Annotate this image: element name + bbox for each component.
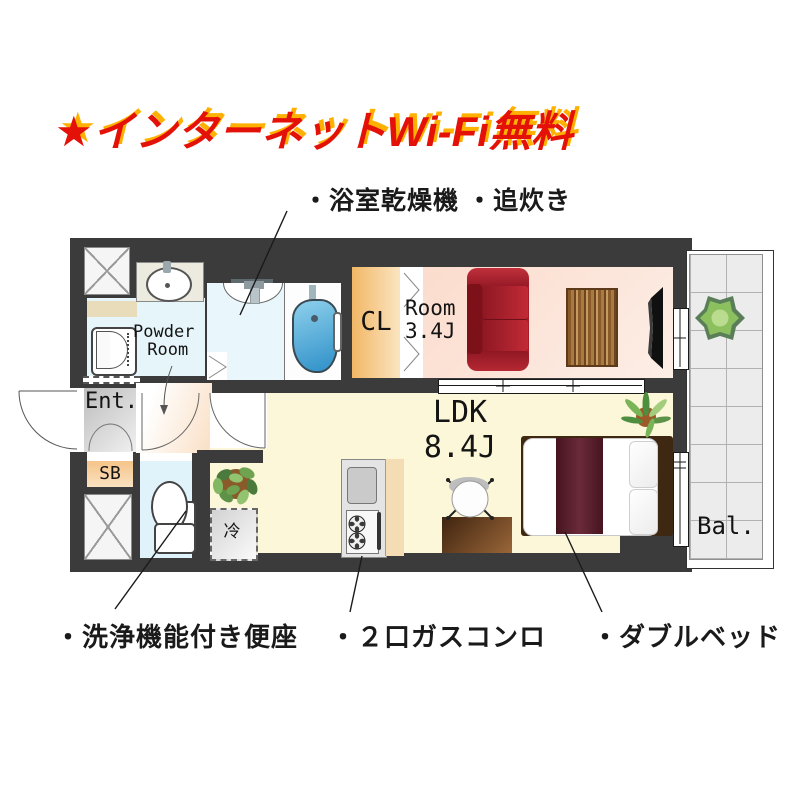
room-ldk-window: [438, 379, 645, 394]
refrigerator-label: 冷: [210, 508, 254, 557]
feature-annotation-stove: ・２口ガスコンロ: [330, 617, 546, 654]
toilet-tank: [154, 523, 196, 554]
bed-cover-stripe: [556, 438, 603, 534]
sofa-back: [467, 284, 482, 354]
wood-rug-icon: [566, 288, 618, 367]
bed-pillow-2: [629, 489, 658, 535]
rug-under-table: [442, 517, 512, 553]
shower-faucet-stem: [250, 287, 260, 304]
kitchen-side-panel: [385, 459, 404, 556]
stove-icon: [346, 510, 379, 554]
closet-label: CL: [352, 267, 400, 378]
room-balcony-window: [673, 308, 689, 370]
room-label: Room3.4J: [405, 297, 456, 342]
wall-stub: [197, 450, 263, 463]
entrance-door-opening: [70, 388, 85, 452]
washbasin-faucet: [163, 261, 171, 273]
entrance-door-swing-icon: [19, 391, 77, 449]
shoebox-label: SB: [87, 461, 133, 487]
bathroom-folding-door: [207, 352, 227, 380]
accordion-door: [83, 376, 140, 384]
shoebox-gap: [87, 452, 133, 461]
powder-room-shelf: [87, 301, 137, 317]
hallway-floor: [136, 383, 212, 453]
washing-machine-buttons: [126, 333, 129, 366]
ldk-label: LDK8.4J: [418, 396, 502, 465]
feature-annotation-toilet: ・洗浄機能付き便座: [55, 617, 298, 654]
ldk-balcony-window: [673, 452, 689, 547]
feature-annotation-top: ・浴室乾燥機 ・追炊き: [303, 181, 571, 217]
feature-annotation-bed: ・ダブルベッド: [592, 617, 781, 654]
kitchen-sink-icon: [347, 467, 377, 504]
bathtub-handle: [333, 312, 342, 352]
page-title: ★インターネットWi-Fi無料: [55, 98, 573, 159]
entrance-label: Ent.: [85, 390, 138, 414]
floorplan-page: PowderRoom Ent. SB CL Room3.4J LDK8.4J 冷…: [0, 0, 800, 800]
sofa-cushion-2: [483, 320, 528, 351]
powder-room-label: PowderRoom: [133, 323, 194, 360]
washbasin-drain: [165, 283, 170, 288]
bathtub-drain: [311, 315, 318, 322]
stove-grill: [377, 512, 381, 550]
bathtub-icon: [292, 299, 338, 373]
meter-box-top: [84, 247, 130, 295]
bed-pillow-1: [629, 441, 658, 488]
room-floor: [423, 267, 673, 378]
meter-box-bottom: [84, 494, 132, 560]
washing-machine-lid: [96, 331, 111, 369]
toilet-door-gap: [140, 453, 192, 461]
balcony-label: Bal.: [697, 514, 755, 540]
ldk-door-swing-area: [210, 393, 267, 448]
sofa-cushion-1: [483, 286, 528, 320]
